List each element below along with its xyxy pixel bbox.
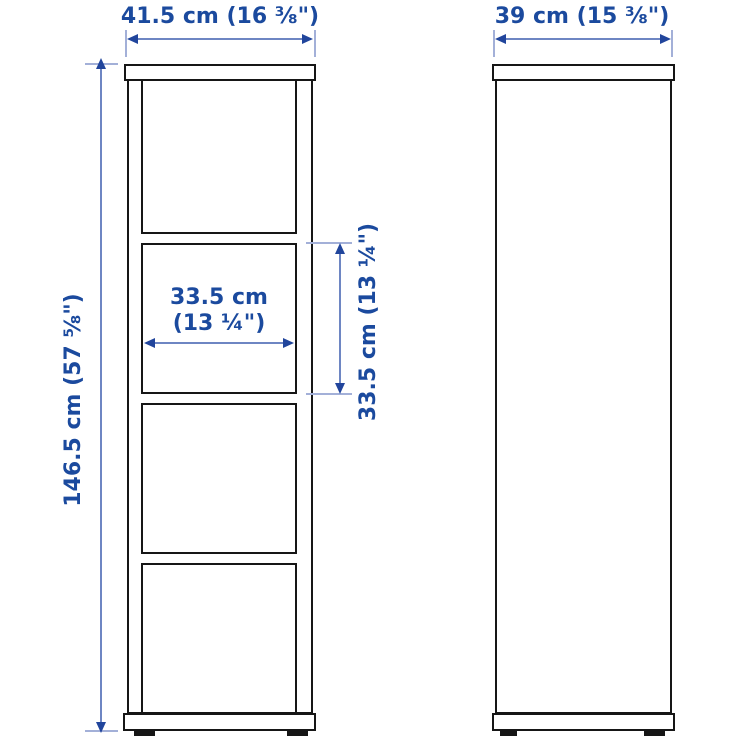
arrowhead-up-icon (96, 58, 106, 69)
inner-height-label: 33.5 cm (13 ¼") (356, 223, 382, 421)
dimension-line (339, 247, 341, 389)
front-foot-left (134, 730, 155, 736)
extension-tick (306, 242, 352, 244)
height-label: 146.5 cm (57 ⅝") (61, 293, 87, 507)
front-bottom-panel (123, 713, 316, 731)
dimension-diagram: 41.5 cm (16 ⅜") 39 cm (15 ⅜") 146.5 cm (… (0, 0, 750, 750)
extension-tick (306, 393, 352, 395)
arrowhead-left-icon (495, 34, 506, 44)
front-top-panel (124, 64, 316, 81)
dimension-line (499, 38, 667, 40)
dimension-line (148, 342, 290, 344)
arrowhead-left-icon (144, 338, 155, 348)
arrowhead-down-icon (335, 383, 345, 394)
extension-tick (671, 30, 673, 57)
dimension-line (131, 38, 309, 40)
shelf-1 (141, 232, 297, 245)
shelf-3 (141, 552, 297, 565)
inner-width-label: 33.5 cm (13 ¼") (143, 285, 295, 337)
side-depth-label: 39 cm (15 ⅜") (482, 4, 682, 30)
dimension-line (100, 63, 102, 728)
side-foot-left (500, 730, 517, 736)
side-bottom-panel (492, 713, 675, 731)
arrowhead-down-icon (96, 722, 106, 733)
shelf-2 (141, 392, 297, 405)
arrowhead-up-icon (335, 243, 345, 254)
front-width-label: 41.5 cm (16 ⅜") (120, 4, 320, 30)
arrowhead-right-icon (660, 34, 671, 44)
side-top-panel (492, 64, 675, 81)
side-foot-right (644, 730, 665, 736)
inner-width-label-line1: 33.5 cm (143, 285, 295, 311)
arrowhead-right-icon (302, 34, 313, 44)
inner-width-label-line2: (13 ¼") (143, 311, 295, 337)
arrowhead-left-icon (127, 34, 138, 44)
extension-tick (314, 30, 316, 57)
front-foot-right (287, 730, 308, 736)
side-body-outline (495, 79, 672, 714)
arrowhead-right-icon (283, 338, 294, 348)
